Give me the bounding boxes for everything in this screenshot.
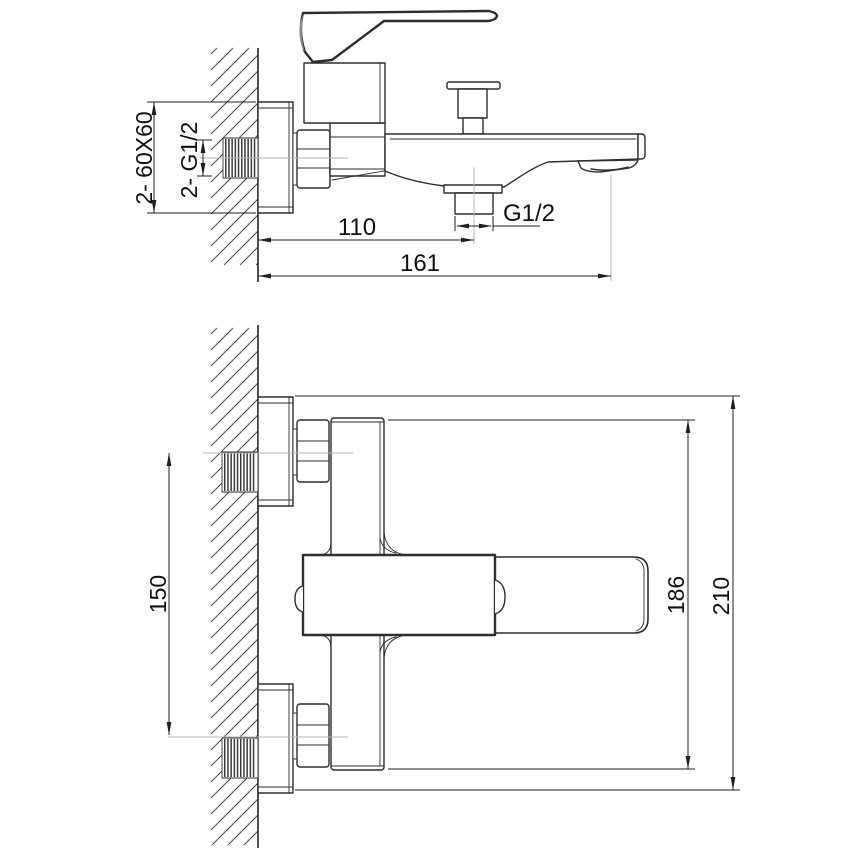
bath-mixer-technical-drawing: 2- 60X60 2- G1/2 110 161 G1/2	[0, 0, 868, 868]
handle-lever	[301, 11, 497, 62]
side-view: 2- 60X60 2- G1/2 110 161 G1/2	[131, 11, 645, 282]
inlet-spacing-label: 150	[145, 575, 171, 613]
diverter-cap	[447, 82, 500, 89]
wall-thread-label: 2- G1/2	[176, 122, 202, 199]
outlet-thread-label: G1/2	[503, 200, 555, 227]
outlet-collar	[444, 185, 502, 193]
diverter-neck	[463, 118, 483, 134]
upper-hex-nut	[297, 420, 329, 482]
handle-block	[303, 555, 495, 635]
handle-lever	[495, 557, 648, 633]
lower-flange	[258, 684, 293, 793]
hex-nut	[297, 130, 330, 188]
diverter-stem	[458, 89, 487, 118]
eccentric-adapter	[330, 123, 385, 176]
overall-width-label: 210	[708, 577, 734, 615]
pivot-bump-fill	[295, 586, 303, 612]
lower-hex-nut	[297, 704, 329, 767]
plate-size-label: 2- 60X60	[131, 111, 157, 204]
cartridge-housing	[304, 63, 385, 123]
spout-end-cap	[638, 134, 645, 159]
plan-view: 150 186 210	[145, 325, 740, 848]
wall-to-outlet-label: 110	[338, 214, 376, 241]
body-width-label: 186	[663, 576, 689, 614]
wall-to-spout-label: 161	[400, 250, 440, 277]
upper-flange	[258, 397, 293, 506]
